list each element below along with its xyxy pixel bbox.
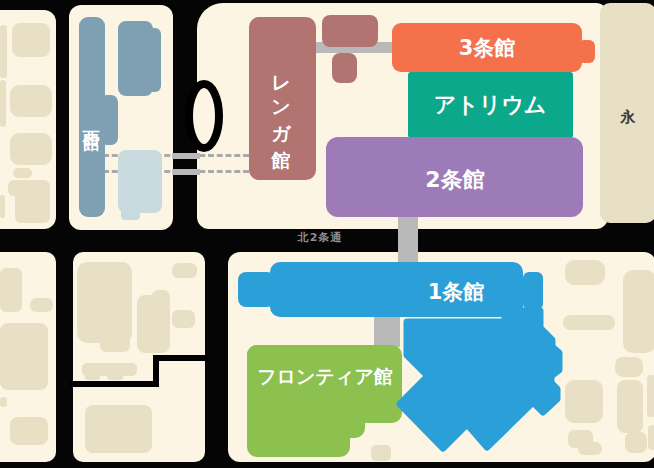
west-annex-building [144,28,161,92]
building-atrium-label: アトリウム [434,90,547,120]
generic-building [172,263,197,278]
skybridge-2jo-1jo [398,215,418,262]
generic-building [77,262,132,343]
building-renga-hall-label: レンガ館 [269,62,295,139]
building-1jo-hall[interactable] [270,262,523,317]
passage-road-crossing [172,153,200,159]
generic-building [578,442,602,455]
generic-building [0,195,5,218]
generic-building [85,370,100,380]
generic-building [565,380,603,423]
generic-building [10,85,52,117]
generic-building [107,370,123,380]
generic-building [623,270,654,353]
building-frontier-hall-step [247,345,350,457]
generic-building [617,380,643,433]
generic-building [371,445,391,461]
passage-road-crossing [172,169,200,175]
building-1jo-hall-west-wing [238,272,275,307]
building-3jo-hall-label: 3条館 [459,34,516,62]
generic-building [0,268,22,312]
skybridge-1jo-annex [374,315,400,347]
generic-building [0,397,7,407]
street-label-kita2jo: 北2条通 [298,230,343,245]
generic-building [10,417,48,445]
generic-building [615,357,643,377]
building-1jo-hall-label: 1条館 [428,278,485,306]
generic-building [625,432,647,453]
west-annex-light-building [121,206,140,220]
generic-building [152,290,170,304]
west-annex-light-building [118,150,162,213]
generic-building [0,25,7,78]
renga-annex-building [332,53,357,83]
generic-building [10,133,52,165]
generic-building [13,168,32,178]
building-1jo-hall-east-wing [523,272,543,310]
generic-building [100,332,130,352]
generic-building [12,23,50,57]
renga-annex-building [322,15,378,47]
building-west-hall-label: 西館 [81,117,104,123]
generic-building [563,315,615,330]
generic-building [15,186,50,223]
generic-building [647,375,654,417]
building-frontier-hall-label: フロンティア館 [257,364,393,390]
generic-building [30,298,53,312]
district-label-east: 永 [621,108,636,127]
generic-building [0,80,6,127]
facility-map: 西館 レンガ館 3条館 アトリウム 2条館 1条館 フロンティア館 北2条通 永 [0,0,654,468]
generic-building [172,310,195,328]
generic-building [648,425,654,450]
building-2jo-hall-label: 2条館 [425,165,484,195]
generic-building [565,260,605,285]
building-3jo-hall-tab [578,40,595,63]
generic-building [85,405,152,453]
generic-building [0,323,48,390]
